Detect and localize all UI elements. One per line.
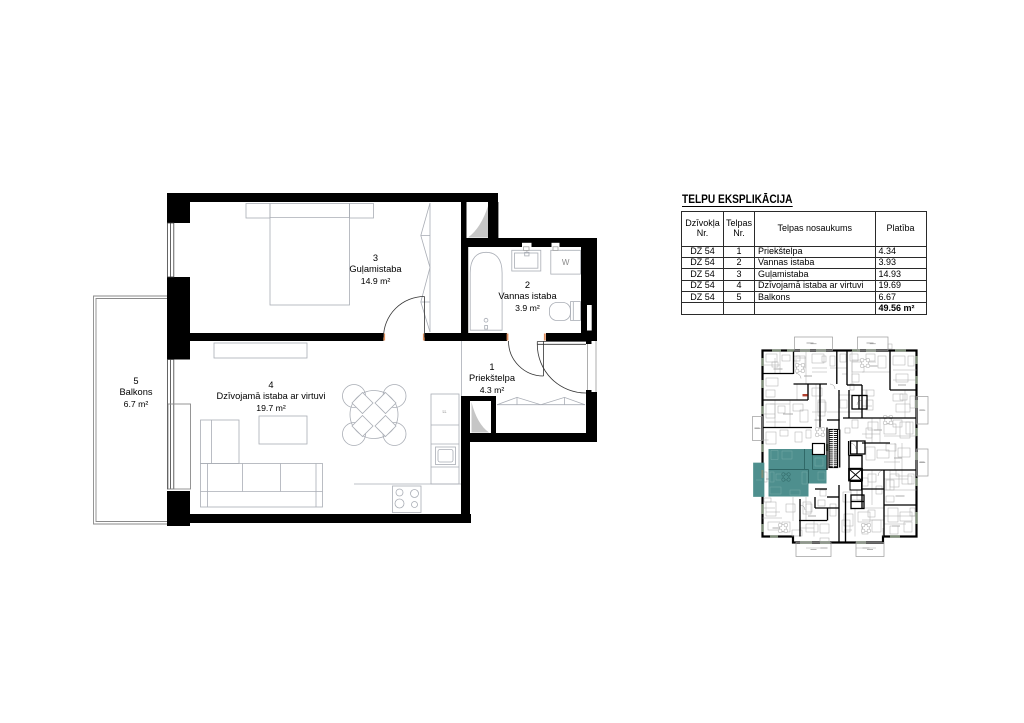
svg-text:W: W bbox=[562, 258, 570, 267]
svg-text:ʟʟ: ʟʟ bbox=[442, 409, 446, 415]
